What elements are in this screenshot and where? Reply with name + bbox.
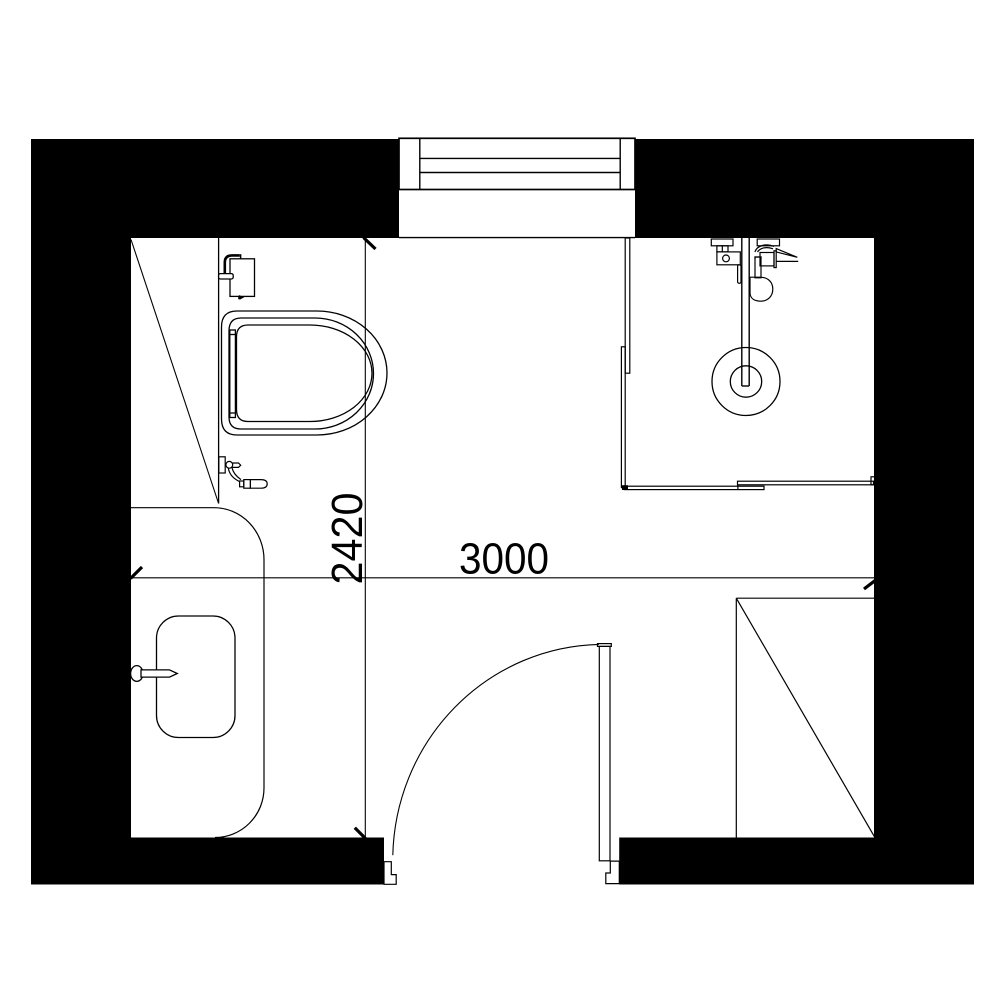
svg-text:3000: 3000	[459, 535, 549, 584]
svg-text:2420: 2420	[323, 493, 372, 585]
